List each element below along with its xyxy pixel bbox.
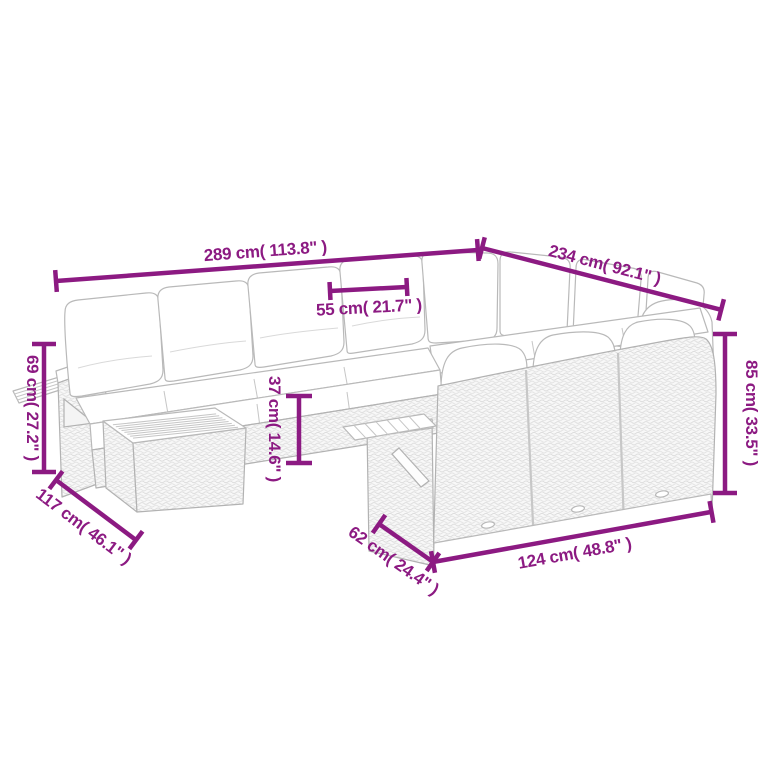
- back-cushion: [158, 281, 253, 382]
- corner-cushion: [422, 252, 498, 343]
- dimension-back-height: 85 cm( 33.5" ): [713, 334, 761, 493]
- ottoman: [103, 408, 246, 512]
- dimension-label: 85 cm( 33.5" ): [742, 360, 761, 466]
- back-cushion: [65, 293, 163, 397]
- dimension-label: 37 cm( 14.6" ): [265, 376, 284, 482]
- product-image-canvas: 289 cm( 113.8" ) 234 cm( 92.1" ) 55 cm( …: [0, 0, 767, 767]
- back-cushion: [500, 252, 570, 339]
- dimension-arm-height: 69 cm( 27.2" ): [23, 344, 56, 472]
- dimension-label: 69 cm( 27.2" ): [23, 355, 42, 461]
- product-dimension-diagram: 289 cm( 113.8" ) 234 cm( 92.1" ) 55 cm( …: [0, 0, 767, 767]
